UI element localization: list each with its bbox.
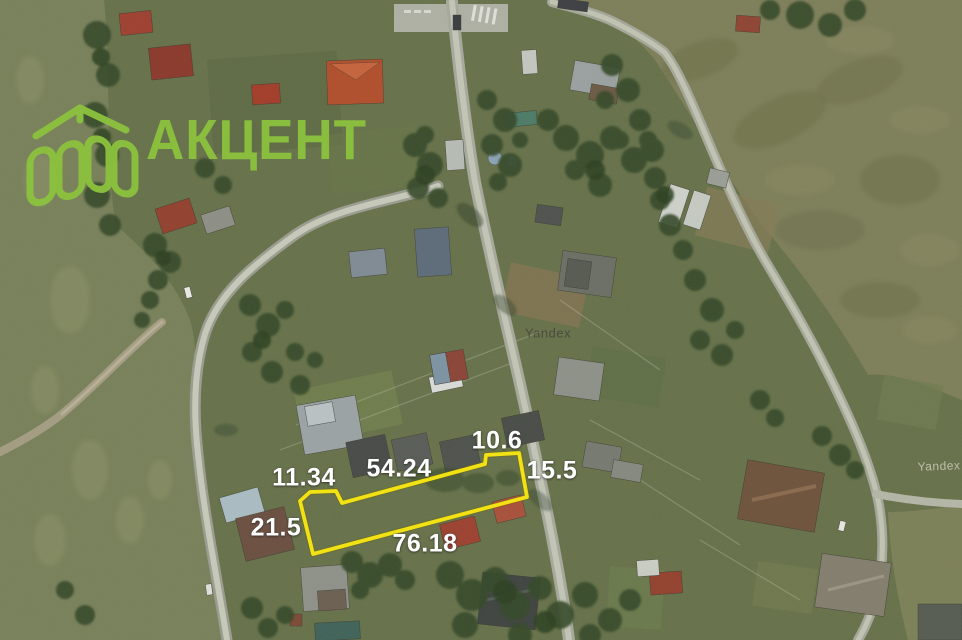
- measurement-label-right: 15.5: [527, 457, 578, 486]
- measurement-label-bottom: 76.18: [392, 530, 457, 559]
- brand-cube-icon: [24, 100, 140, 212]
- satellite-photo: 10.6 15.5 54.24 11.34 21.5 76.18 АКЦЕНТ …: [0, 0, 962, 640]
- measurement-label-left: 21.5: [251, 514, 302, 543]
- provider-watermark: Yandex: [917, 458, 960, 473]
- brand-watermark: АКЦЕНТ: [22, 98, 392, 214]
- measurement-label-top-long: 54.24: [366, 455, 431, 484]
- brand-name: АКЦЕНТ: [146, 112, 367, 169]
- satellite-map-image: [0, 0, 962, 640]
- measurement-label-left-top: 11.34: [272, 464, 336, 493]
- provider-watermark: Yandex: [525, 326, 571, 341]
- photo-grain-overlay: [0, 0, 962, 640]
- measurement-label-top: 10.6: [472, 427, 523, 456]
